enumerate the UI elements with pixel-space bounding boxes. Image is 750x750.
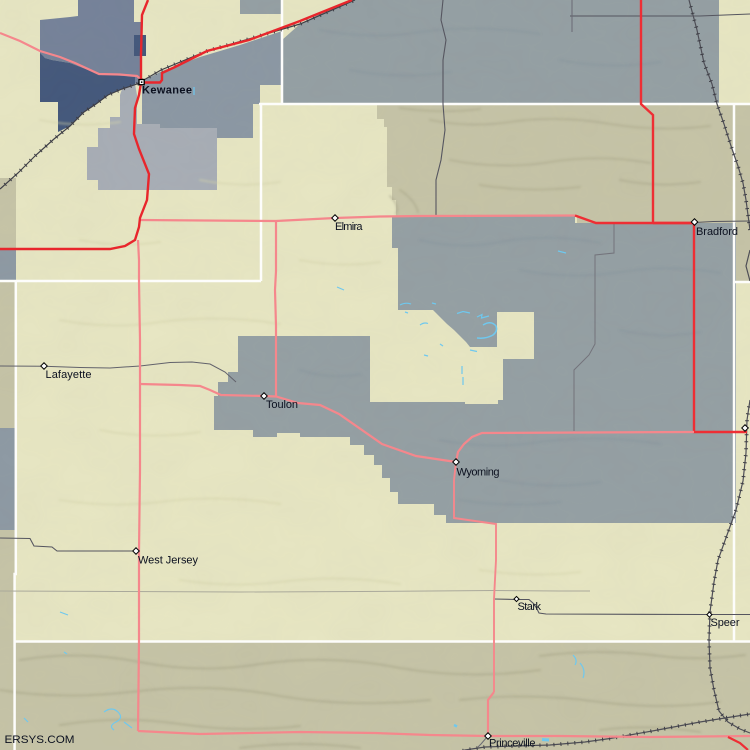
- svg-text:Princeville: Princeville: [489, 738, 536, 750]
- svg-text:Toulon: Toulon: [266, 399, 298, 411]
- svg-text:Kewanee: Kewanee: [142, 85, 192, 97]
- svg-text:Lafayette: Lafayette: [46, 369, 92, 381]
- svg-text:Bradford: Bradford: [696, 226, 738, 238]
- svg-text:Speer: Speer: [711, 617, 740, 629]
- svg-text:Stark: Stark: [518, 601, 542, 613]
- svg-text:ERSYS.COM: ERSYS.COM: [5, 734, 75, 746]
- svg-text:Elmira: Elmira: [335, 221, 363, 233]
- svg-text:West Jersey: West Jersey: [138, 555, 199, 567]
- svg-text:Wyoming: Wyoming: [457, 467, 500, 479]
